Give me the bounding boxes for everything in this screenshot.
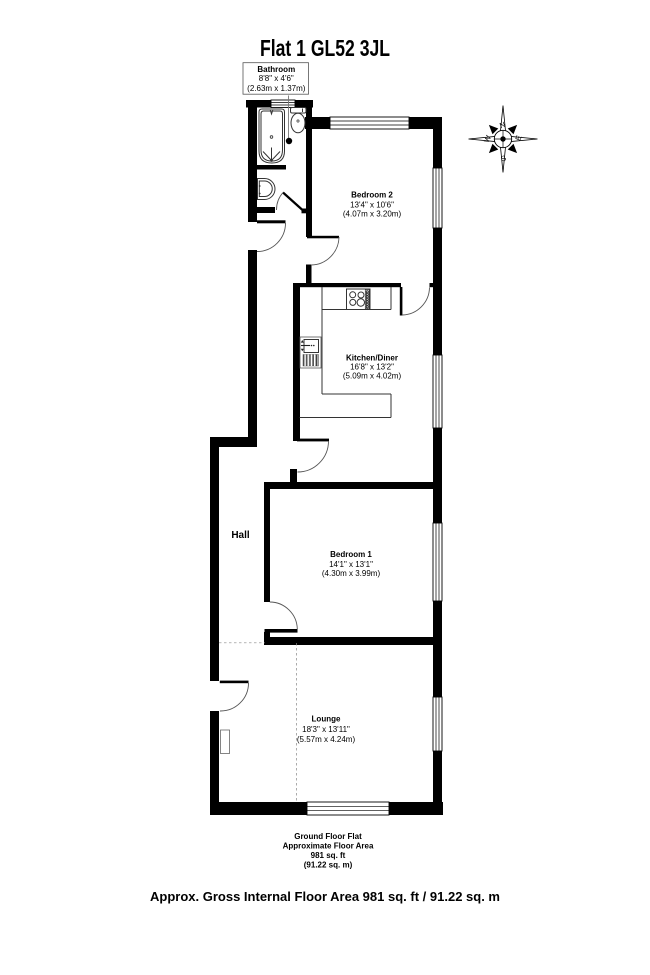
svg-text:(4.30m x 3.99m): (4.30m x 3.99m): [322, 569, 381, 578]
svg-text:14'1" x 13'1": 14'1" x 13'1": [329, 560, 373, 569]
svg-text:(5.57m x 4.24m): (5.57m x 4.24m): [297, 735, 356, 744]
svg-text:Ground Floor Flat: Ground Floor Flat: [294, 832, 362, 841]
svg-text:Lounge: Lounge: [312, 715, 341, 724]
svg-text:Bathroom: Bathroom: [257, 65, 295, 74]
svg-text:Bedroom 2: Bedroom 2: [351, 191, 393, 200]
svg-text:Approximate Floor Area: Approximate Floor Area: [283, 842, 374, 851]
svg-text:Approx. Gross Internal Floor A: Approx. Gross Internal Floor Area 981 sq…: [150, 889, 500, 904]
svg-text:8'8" x 4'6": 8'8" x 4'6": [259, 74, 294, 83]
svg-text:16'8" x 13'2": 16'8" x 13'2": [350, 363, 394, 372]
svg-text:981 sq. ft: 981 sq. ft: [311, 851, 346, 860]
svg-text:Kitchen/Diner: Kitchen/Diner: [346, 354, 398, 363]
svg-text:(5.09m x 4.02m): (5.09m x 4.02m): [343, 372, 402, 381]
svg-text:(91.22 sq. m): (91.22 sq. m): [304, 861, 353, 870]
svg-text:Flat 1 GL52 3JL: Flat 1 GL52 3JL: [260, 35, 390, 61]
svg-text:Hall: Hall: [231, 530, 250, 541]
svg-text:18'3" x 13'11": 18'3" x 13'11": [302, 725, 350, 734]
svg-text:13'4" x 10'6": 13'4" x 10'6": [350, 201, 394, 210]
svg-text:(4.07m x 3.20m): (4.07m x 3.20m): [343, 210, 402, 219]
svg-text:Bedroom 1: Bedroom 1: [330, 550, 372, 559]
svg-text:(2.63m x 1.37m): (2.63m x 1.37m): [247, 84, 306, 93]
